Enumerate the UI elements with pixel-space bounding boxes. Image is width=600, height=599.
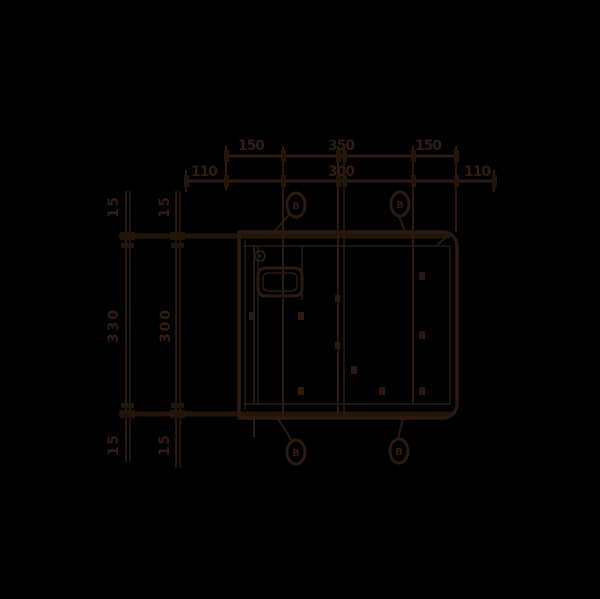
dim-label-top-center: 350: [328, 138, 355, 154]
top-dimension-labels: 150 350 150 110 300 110: [191, 138, 491, 180]
dim-tick: [170, 410, 185, 418]
hole: [335, 295, 340, 302]
hole: [335, 342, 340, 349]
dim-tick: [171, 243, 184, 248]
hole: [419, 272, 425, 280]
dim-label-left-inner-top: 15: [157, 198, 173, 218]
mounting-slot: [255, 251, 302, 296]
dim-label-left-outer-middle: 330: [106, 310, 122, 343]
dim-label-row2-center: 300: [328, 164, 355, 180]
dim-tick: [120, 410, 135, 418]
dim-label-left-outer-top: 15: [106, 198, 122, 218]
hole: [379, 387, 385, 395]
dim-label-left-inner-bottom: 15: [157, 436, 173, 456]
dim-tick: [171, 403, 184, 408]
slot-pivot-dot: [259, 255, 262, 258]
dim-label-top-right: 150: [415, 138, 442, 154]
balloon-label-top-right: B: [396, 200, 404, 211]
dim-tick: [454, 175, 459, 187]
dim-tick: [170, 232, 185, 240]
dimension-drawing-canvas: 150 350 150 110 300 110 15 330 15 15 300…: [0, 0, 600, 599]
dim-tick: [224, 175, 229, 187]
dim-label-row2-right: 110: [464, 164, 491, 180]
dim-tick: [121, 403, 134, 408]
hole: [298, 312, 304, 320]
dim-tick: [281, 150, 286, 162]
hole: [298, 387, 304, 395]
hole: [419, 387, 425, 395]
slot-inner: [263, 273, 297, 291]
dim-tick: [454, 150, 459, 162]
dim-label-left-outer-bottom: 15: [106, 436, 122, 456]
leader-line: [277, 417, 292, 441]
balloon-label-top-left: B: [292, 201, 300, 212]
hole: [249, 312, 255, 320]
hole: [419, 331, 425, 339]
dim-label-top-left: 150: [238, 138, 265, 154]
dim-label-left-inner-middle: 300: [158, 310, 174, 343]
balloon-label-bottom-left: B: [292, 448, 300, 459]
mounting-plate-drawing: 150 350 150 110 300 110 15 330 15 15 300…: [0, 0, 600, 599]
leader-line: [398, 417, 403, 440]
dim-tick: [121, 243, 134, 248]
dim-tick: [411, 175, 416, 187]
dim-tick: [224, 150, 229, 162]
hole: [351, 366, 357, 374]
dim-label-row2-left: 110: [191, 164, 218, 180]
dim-tick: [492, 175, 497, 187]
slot-outer: [258, 268, 302, 296]
dim-tick: [281, 175, 286, 187]
dim-tick: [184, 175, 189, 187]
dim-tick: [120, 232, 135, 240]
balloon-label-bottom-right: B: [395, 447, 403, 458]
